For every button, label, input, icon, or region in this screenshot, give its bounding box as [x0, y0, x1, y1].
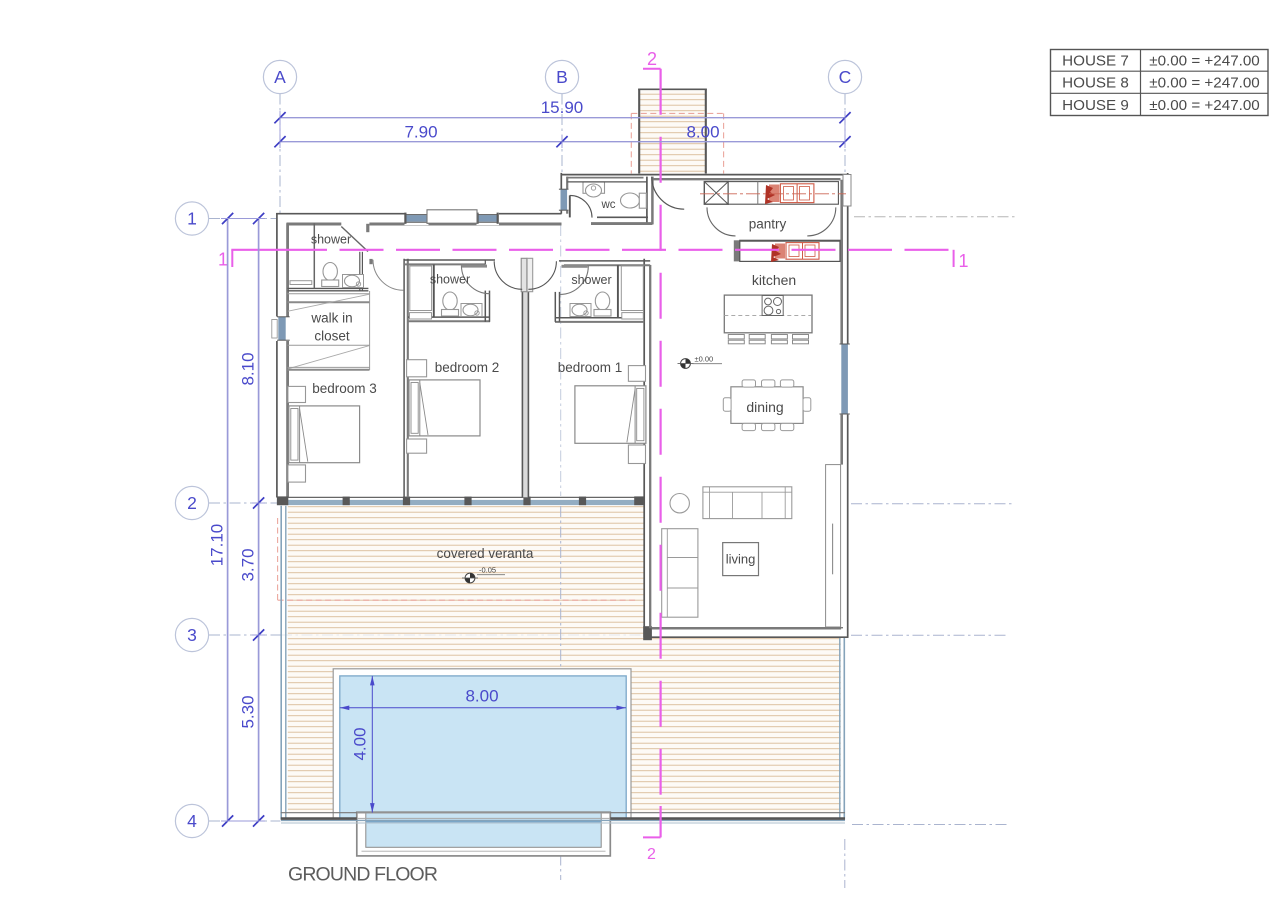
svg-text:2: 2 [647, 846, 656, 863]
svg-text:-0.05: -0.05 [479, 566, 496, 575]
svg-text:7.90: 7.90 [404, 123, 437, 142]
svg-text:walk in: walk in [310, 311, 352, 326]
svg-text:shower: shower [311, 233, 351, 247]
svg-text:±0.00 = +247.00: ±0.00 = +247.00 [1149, 53, 1260, 70]
svg-text:4: 4 [187, 811, 197, 831]
svg-text:A: A [274, 67, 286, 87]
svg-text:HOUSE 8: HOUSE 8 [1062, 75, 1129, 92]
svg-text:bedroom 2: bedroom 2 [435, 360, 500, 375]
svg-text:GROUND FLOOR: GROUND FLOOR [288, 864, 438, 886]
svg-text:1: 1 [218, 250, 228, 270]
svg-text:17.10: 17.10 [208, 524, 227, 567]
svg-text:1: 1 [187, 209, 197, 229]
svg-text:bedroom 3: bedroom 3 [312, 381, 377, 396]
svg-text:wc: wc [600, 199, 615, 211]
svg-text:closet: closet [314, 329, 350, 344]
svg-text:HOUSE 9: HOUSE 9 [1062, 97, 1129, 114]
svg-text:3.70: 3.70 [239, 548, 258, 581]
svg-text:3: 3 [187, 625, 197, 645]
svg-text:2: 2 [647, 49, 657, 69]
svg-text:shower: shower [430, 273, 470, 287]
svg-text:dining: dining [746, 399, 783, 415]
svg-text:8.00: 8.00 [465, 687, 498, 706]
svg-text:1: 1 [958, 251, 968, 271]
svg-text:C: C [839, 67, 852, 87]
svg-text:2: 2 [187, 493, 197, 513]
svg-text:living: living [726, 552, 756, 567]
svg-text:bedroom 1: bedroom 1 [558, 360, 623, 375]
svg-text:15.90: 15.90 [541, 98, 584, 117]
svg-text:5.30: 5.30 [239, 695, 258, 728]
svg-text:shower: shower [571, 273, 611, 287]
svg-text:4.00: 4.00 [351, 727, 370, 760]
svg-text:covered veranta: covered veranta [437, 546, 534, 561]
svg-text:8.10: 8.10 [239, 352, 258, 385]
svg-text:±0.00: ±0.00 [695, 355, 714, 364]
svg-text:8.00: 8.00 [686, 123, 719, 142]
svg-text:kitchen: kitchen [752, 272, 796, 288]
svg-text:pantry: pantry [749, 217, 787, 232]
svg-text:B: B [556, 67, 568, 87]
svg-text:HOUSE 7: HOUSE 7 [1062, 53, 1129, 70]
svg-text:±0.00 = +247.00: ±0.00 = +247.00 [1149, 97, 1260, 114]
svg-text:±0.00 = +247.00: ±0.00 = +247.00 [1149, 75, 1260, 92]
